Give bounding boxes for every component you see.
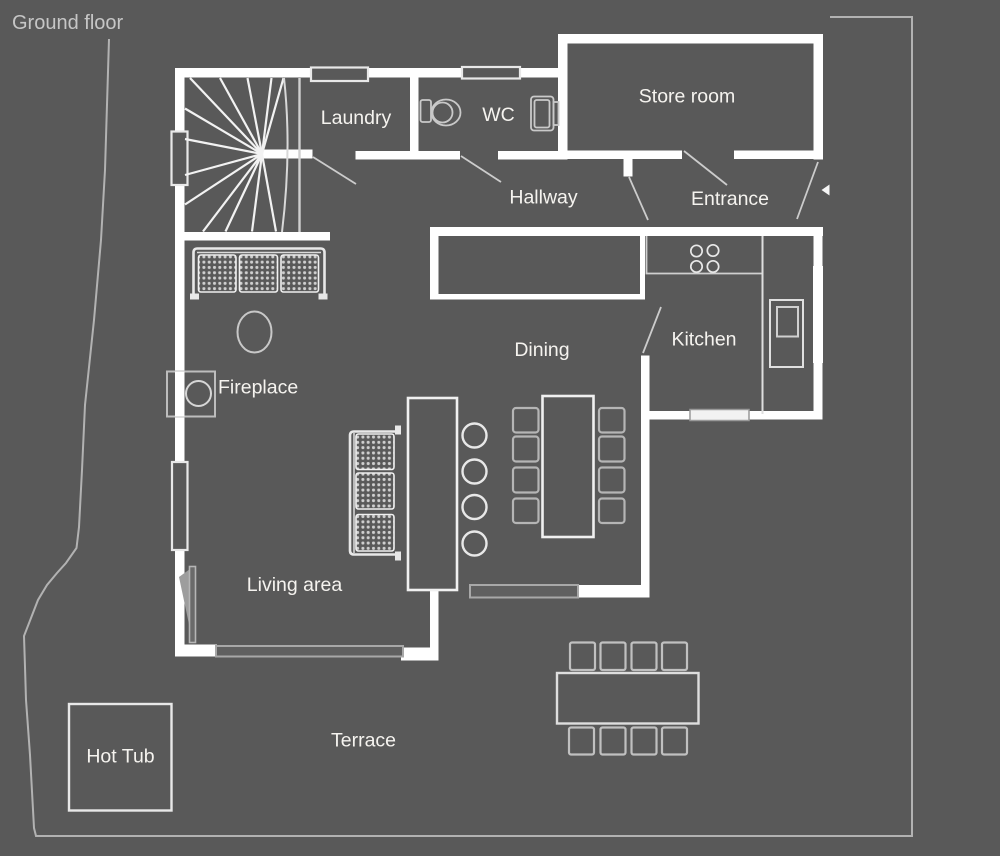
svg-text:Fireplace: Fireplace: [218, 377, 298, 399]
svg-text:Ground floor: Ground floor: [12, 12, 124, 34]
svg-text:Terrace: Terrace: [331, 730, 396, 752]
svg-text:Hallway: Hallway: [509, 187, 578, 209]
svg-text:Hot Tub: Hot Tub: [86, 746, 154, 768]
svg-text:Living area: Living area: [247, 574, 343, 596]
svg-text:Entrance: Entrance: [691, 188, 769, 210]
svg-text:Store room: Store room: [639, 86, 735, 108]
svg-text:WC: WC: [482, 104, 515, 126]
svg-text:Laundry: Laundry: [321, 107, 392, 129]
svg-text:Dining: Dining: [514, 339, 569, 361]
svg-text:Kitchen: Kitchen: [671, 329, 736, 351]
